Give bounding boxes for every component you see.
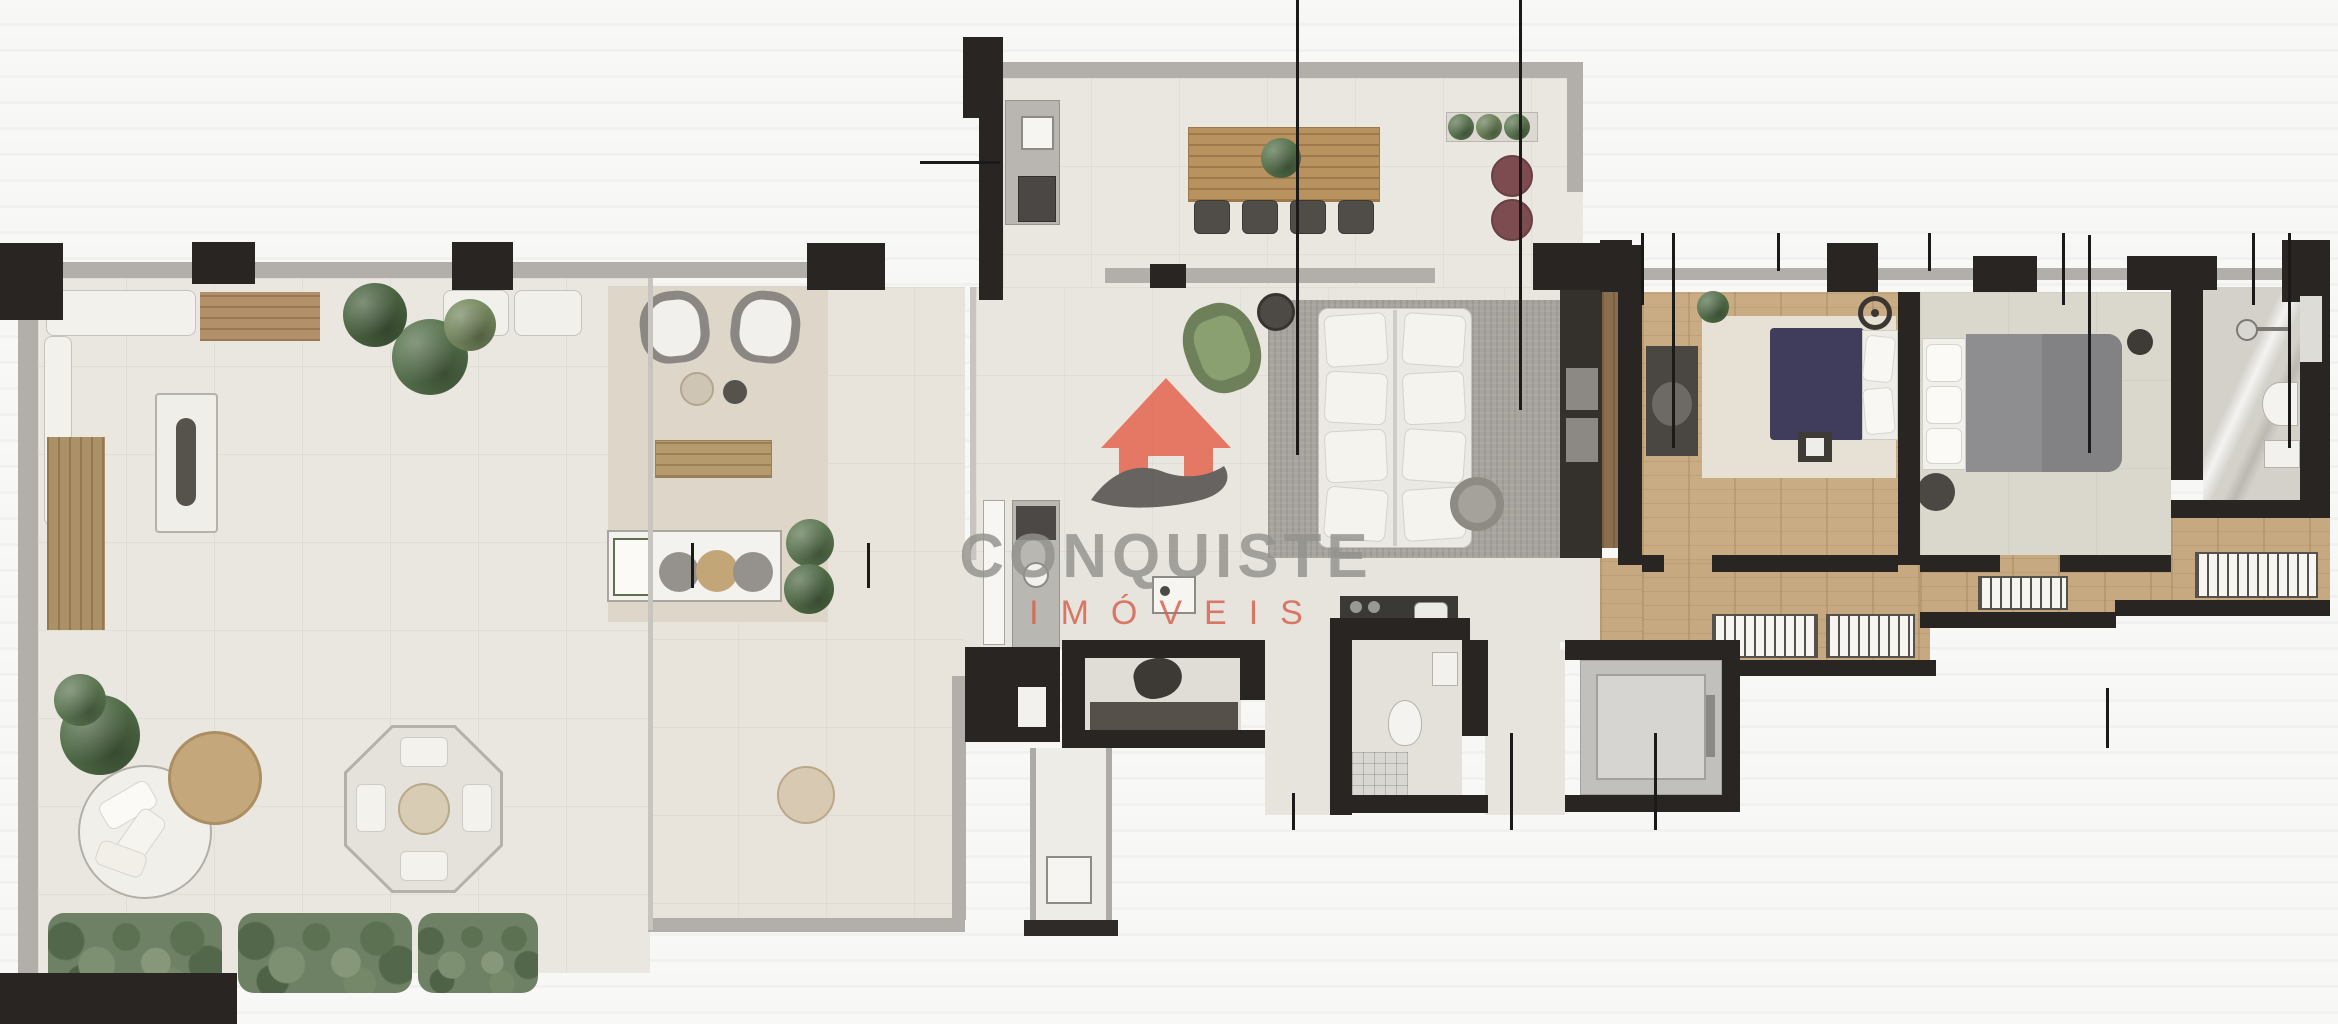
wall-bed1-bottom-a xyxy=(1642,555,1664,572)
wall-gourmet-top xyxy=(1003,62,1583,78)
plant-pot-1 xyxy=(786,519,834,567)
ledge-plant-3 xyxy=(1504,114,1530,140)
dim-line-12 xyxy=(1510,733,1513,830)
wall-bed2-bottom-b xyxy=(2060,555,2171,572)
hall-tile-patch xyxy=(1560,558,1602,642)
bathroom2-niche xyxy=(2300,296,2322,362)
shower-head xyxy=(2236,319,2258,341)
bed2-pillow-2 xyxy=(1926,386,1962,424)
bathroom1-toilet xyxy=(1388,700,1422,746)
pillar-gourmet xyxy=(963,37,1003,118)
wall-r3 xyxy=(1973,256,2037,292)
sideboard-bowl xyxy=(696,550,738,592)
pillar-r2 xyxy=(1827,243,1878,292)
wall-hall-bottom-a xyxy=(1740,660,1936,676)
bed2-pillow-3 xyxy=(1926,428,1962,464)
duct-wall-right xyxy=(1106,748,1112,930)
wall-family-bottom xyxy=(648,918,965,932)
bed1-pillow-2 xyxy=(1862,387,1896,435)
side-table-1 xyxy=(680,372,714,406)
wall-r4 xyxy=(2127,256,2217,290)
tech-appliance-dark xyxy=(1018,176,1056,222)
wine-pouf-2 xyxy=(1491,199,1533,241)
table-plant xyxy=(1261,138,1301,178)
bed1-pillow-1 xyxy=(1862,335,1897,384)
terrace-sideboard xyxy=(200,292,320,341)
wall-hall-bottom-b xyxy=(1920,612,2116,628)
bathroom1-sink xyxy=(1432,652,1458,686)
lavabo-vanity xyxy=(1090,702,1238,730)
hedge-3 xyxy=(418,913,538,993)
octagon-table xyxy=(398,783,450,835)
bed1-bench-top xyxy=(1806,438,1824,456)
wine-pouf-1 xyxy=(1491,155,1533,197)
armchair-1-cushion xyxy=(646,297,703,358)
bed2-duvet-fold xyxy=(2042,334,2122,472)
wall-gourmet-black xyxy=(1533,243,1602,290)
side-table-2 xyxy=(723,380,747,404)
block-gourmet-small xyxy=(1150,264,1186,288)
dim-line-15 xyxy=(920,161,1000,164)
wall-bed-middle xyxy=(1898,292,1920,565)
plant-pot-2 xyxy=(784,564,834,614)
corner-sofa-top xyxy=(46,290,196,336)
wall-bed2-bottom-a xyxy=(1920,555,2000,572)
wall-lavabo-right xyxy=(1240,658,1265,700)
sofa-cushion-l1 xyxy=(1323,312,1388,368)
dining-chair-1 xyxy=(1194,200,1230,234)
wall-bath2-left xyxy=(2171,287,2203,480)
dim-line-11 xyxy=(1292,793,1295,830)
wall-bed1-bottom-b xyxy=(1712,555,1898,572)
mid-bush-2 xyxy=(54,674,106,726)
wall-elevator-top xyxy=(1565,640,1740,660)
wall-right-outer xyxy=(2300,240,2330,518)
wall-bath1-right xyxy=(1462,640,1488,736)
wardrobe-2 xyxy=(1826,614,1915,658)
bed2-round-rug xyxy=(1917,473,1955,511)
dim-line-13 xyxy=(1654,733,1657,830)
elevator-hall-floor xyxy=(1485,650,1565,815)
dim-line-2 xyxy=(1519,0,1522,410)
ceiling-fan-dot xyxy=(1871,309,1879,317)
dim-line-7 xyxy=(2062,233,2065,305)
bedroom1-plant xyxy=(1697,291,1729,323)
kitchen-block-niche xyxy=(1018,687,1046,727)
wardrobe-4 xyxy=(2195,552,2318,598)
wall-lavabo-bottom xyxy=(1062,730,1265,748)
wall-family-right xyxy=(952,676,966,920)
round-ottoman xyxy=(168,731,262,825)
tv-unit-inset-1 xyxy=(1566,368,1598,410)
wall-right-bottom xyxy=(2115,600,2330,616)
duct-fixture xyxy=(1046,856,1092,904)
dim-line-14 xyxy=(2106,688,2109,748)
pillar-2 xyxy=(192,242,255,284)
elevator-cabin xyxy=(1596,674,1706,780)
shower-arm xyxy=(2256,327,2290,331)
watermark: CONQUISTE IMÓVEIS xyxy=(940,372,1392,630)
elevator-handle xyxy=(1706,695,1715,757)
sofa-cushion-r3 xyxy=(1401,428,1466,484)
duct-wall-left xyxy=(1030,748,1036,930)
tv-unit-inset-2 xyxy=(1566,418,1598,462)
conquiste-logo-icon xyxy=(1081,372,1251,522)
sofa-cushion-r1 xyxy=(1401,312,1466,368)
wall-elevator-right xyxy=(1722,640,1740,802)
bathroom2-sink xyxy=(2264,440,2300,468)
dining-chair-2 xyxy=(1242,200,1278,234)
wall-gourmet-right xyxy=(1567,62,1583,192)
bed2-pillow-1 xyxy=(1926,344,1962,382)
lounger-2 xyxy=(514,290,582,336)
watermark-subtitle: IMÓVEIS xyxy=(940,596,1392,630)
bed1-duvet xyxy=(1770,328,1864,440)
sideboard-tray xyxy=(613,538,650,596)
dim-line-10 xyxy=(2288,233,2291,448)
octagon-chair-south xyxy=(400,851,448,881)
octagon-chair-north xyxy=(400,737,448,767)
ledge-plant-2 xyxy=(1476,114,1502,140)
sideboard-decor-2 xyxy=(733,552,773,592)
floor-plan: CONQUISTE IMÓVEIS xyxy=(0,0,2338,1024)
dim-line-17 xyxy=(867,543,870,588)
pillar-1 xyxy=(0,243,63,320)
hedge-2 xyxy=(238,913,412,993)
wall-bath1-left xyxy=(1330,640,1352,815)
dim-line-9 xyxy=(2252,233,2255,305)
palm-plant xyxy=(343,283,407,347)
corner-block-bottom-left xyxy=(0,973,237,1024)
wall-bath2-bottom xyxy=(2171,500,2330,518)
sofa-divider xyxy=(1393,310,1397,546)
watermark-title: CONQUISTE xyxy=(940,526,1392,588)
wardrobe-3 xyxy=(1978,576,2068,610)
wall-bath1-bottom xyxy=(1330,795,1488,813)
living-round-table xyxy=(1257,293,1295,331)
wall-gourmet-left xyxy=(979,118,1003,300)
sofa-cushion-r2 xyxy=(1402,370,1467,425)
dim-line-8 xyxy=(2088,235,2091,453)
dining-chair-4 xyxy=(1338,200,1374,234)
tech-appliance-white xyxy=(1021,116,1054,150)
dim-line-6 xyxy=(1928,233,1931,271)
pillar-4 xyxy=(807,243,885,290)
duct-bottom-wall xyxy=(1024,920,1118,936)
terrace-stool xyxy=(777,766,835,824)
dim-line-16 xyxy=(691,543,694,588)
wall-terrace-left xyxy=(18,262,38,975)
bathroom2-toilet xyxy=(2262,382,2298,426)
dim-line-4 xyxy=(1672,233,1675,448)
firepit-slot xyxy=(176,418,196,506)
wall-elevator-bottom xyxy=(1565,795,1740,812)
wall-bed1-left xyxy=(1618,245,1642,565)
octagon-chair-west xyxy=(356,784,386,832)
bathroom1-shower xyxy=(1352,752,1408,795)
deck-strip xyxy=(47,437,105,630)
living-pouf-top xyxy=(1458,485,1496,523)
dim-line-3 xyxy=(1641,233,1644,305)
bush-small xyxy=(444,299,496,351)
coffee-bench xyxy=(655,440,772,478)
octagon-chair-east xyxy=(462,784,492,832)
bed2-side-table xyxy=(2127,329,2153,355)
divider-terrace xyxy=(648,278,653,930)
ledge-plant-1 xyxy=(1448,114,1474,140)
pillar-3 xyxy=(452,242,513,290)
wall-lavabo-top xyxy=(1062,640,1265,658)
dim-line-5 xyxy=(1777,233,1780,271)
